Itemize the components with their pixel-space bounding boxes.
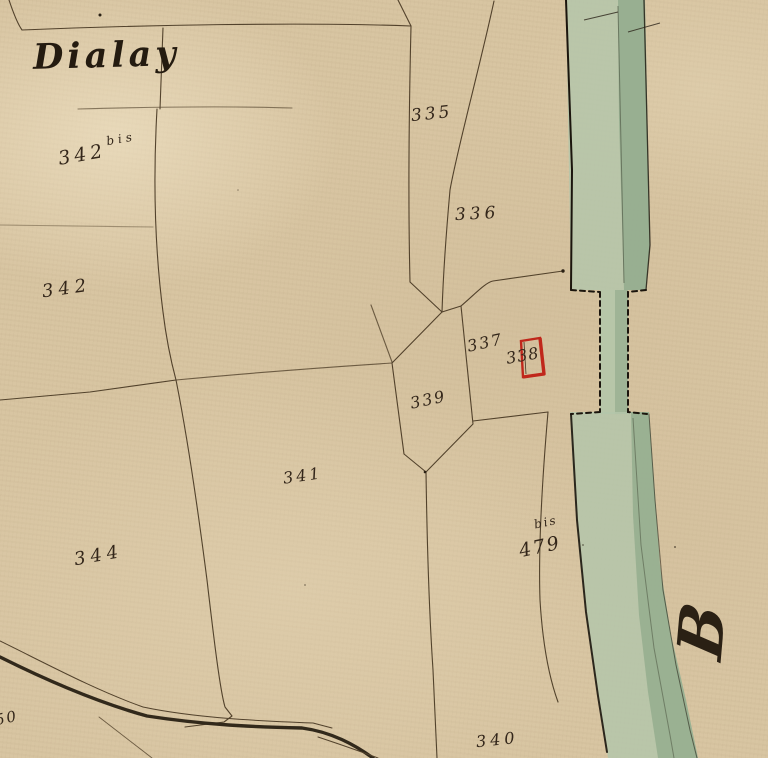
junction-dot <box>99 14 102 17</box>
paper-speck <box>674 546 676 548</box>
map-line-art <box>0 0 768 758</box>
river-neck-outline-left <box>571 290 600 414</box>
place-name-label: Dialay <box>33 36 181 75</box>
boundary-341-top <box>176 363 392 380</box>
boundary-bend <box>410 282 442 312</box>
path-below-road <box>99 717 152 758</box>
boundary-top-spur <box>398 0 411 26</box>
boundary-335-336 <box>442 1 494 312</box>
parcel-boundaries <box>0 0 563 758</box>
boundary-344-right <box>176 380 232 727</box>
junction-dot <box>424 471 427 474</box>
boundary-top-horizontal <box>9 0 411 30</box>
boundary-341-340 <box>426 472 437 758</box>
boundary-344-top <box>0 380 176 400</box>
cadastral-map-canvas: Dialay 342bis 342 335 336 337 338 339 34… <box>0 0 768 758</box>
paper-speck <box>304 584 306 586</box>
parcel-label-336: 336 <box>455 205 500 224</box>
paper-speck <box>237 189 239 191</box>
boundary-to-river <box>461 271 563 306</box>
boundary-vertical-center <box>409 26 411 282</box>
junction-dot <box>561 269 564 272</box>
boundary-topleft-horizontal <box>78 107 292 109</box>
parcel-label-340: 340 <box>475 730 519 750</box>
boundary-337-bottom <box>473 412 548 421</box>
boundary-topleft-vertical-b <box>155 109 176 380</box>
paper-speck <box>582 544 584 546</box>
road-lower-edge <box>318 737 378 758</box>
boundary-short-diagonal <box>371 305 392 362</box>
road-center <box>0 657 373 758</box>
boundary-342-faint <box>0 225 153 227</box>
river-neck-outline-right <box>628 290 647 414</box>
parcel-label-335: 335 <box>410 104 453 125</box>
road-upper-edge <box>0 641 332 728</box>
river-neck-dark <box>615 290 628 414</box>
